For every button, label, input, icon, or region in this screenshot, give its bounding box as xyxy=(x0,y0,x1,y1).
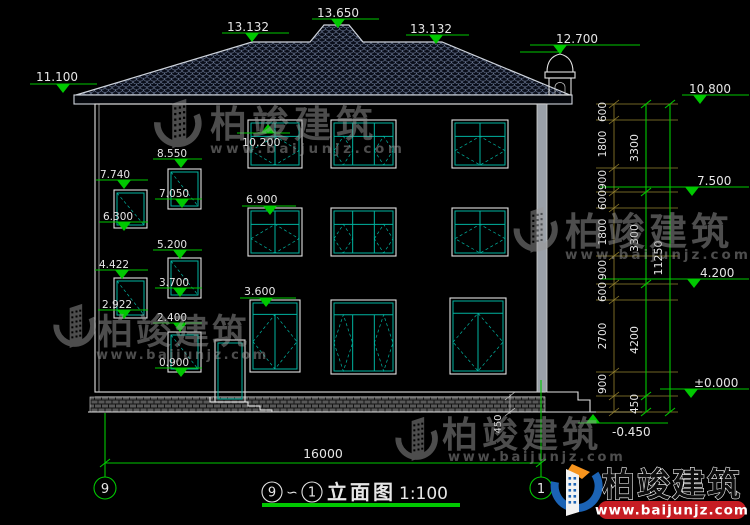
elevation-marker: 4.200 xyxy=(600,266,749,288)
axis-9: 9 xyxy=(94,413,116,499)
brand-logo-text: 柏竣建筑 xyxy=(602,465,742,504)
elevation-marker: 7.500 xyxy=(600,174,749,196)
elevation-marker: 6.900 xyxy=(242,193,296,215)
watermark-bottom: 柏竣建筑 www.baijunjz.com xyxy=(398,415,625,465)
dimension-label: 600 xyxy=(597,282,609,302)
watermark-url: www.baijunjz.com xyxy=(96,348,269,363)
elevation-marker: 7.050 xyxy=(155,188,202,208)
watermark-logo-icon xyxy=(157,99,198,148)
elevation-marker: 8.550 xyxy=(153,148,202,168)
dimension-label: 1800 xyxy=(597,131,609,158)
cad-elevation-screenshot: 11.10013.13213.65013.13212.70010.8007.50… xyxy=(0,0,750,525)
elevation-value: ±0.000 xyxy=(694,376,738,390)
dimension-label: 900 xyxy=(597,374,609,394)
elevation-value: 12.700 xyxy=(556,32,598,46)
dimension-label: 2700 xyxy=(597,323,609,350)
elevation-value: 3.700 xyxy=(159,277,189,289)
elevation-value: 10.800 xyxy=(689,82,731,96)
elevation-marker: 7.740 xyxy=(96,169,148,189)
elevation-drawing: 11.10013.13213.65013.13212.70010.8007.50… xyxy=(0,0,750,525)
elevation-value: 13.132 xyxy=(227,20,269,34)
right-step xyxy=(547,392,590,412)
title-scale: 1:100 xyxy=(399,484,448,504)
watermark-logo-icon xyxy=(56,304,93,348)
dimension-label: 600 xyxy=(597,190,609,210)
elevation-marker: 13.132 xyxy=(406,22,469,44)
title-underline xyxy=(262,503,460,507)
window xyxy=(452,208,508,256)
elevation-value: 7.740 xyxy=(100,169,130,181)
window xyxy=(450,298,506,374)
plinth-brick xyxy=(90,397,545,412)
title-tilde: ∽ xyxy=(286,485,298,501)
watermark-logo-icon xyxy=(398,417,435,461)
elevation-value: 6.900 xyxy=(246,193,278,206)
elevation-value: 5.200 xyxy=(157,239,187,251)
logo-building-icon xyxy=(566,469,579,516)
elevation-marker: 3.600 xyxy=(240,285,296,307)
brand-logo-url: www.baijunjz.com xyxy=(595,503,749,519)
elevation-marker: 4.422 xyxy=(95,259,148,279)
watermark-right: 柏竣建筑 www.baijunjz.com xyxy=(517,207,750,263)
elevation-value: -0.450 xyxy=(612,425,651,439)
dimension-label: 3300 xyxy=(628,134,641,162)
window xyxy=(248,208,302,256)
roof-outline xyxy=(76,25,570,95)
dimension-label: 600 xyxy=(597,102,609,122)
elevation-value: 2.922 xyxy=(102,299,132,311)
overall-width-label: 16000 xyxy=(303,446,343,461)
roof xyxy=(74,25,575,104)
watermark-url: www.baijunjz.com xyxy=(565,247,750,263)
elevation-value: 7.050 xyxy=(159,188,189,200)
watermark-left: 柏竣建筑 www.baijunjz.com xyxy=(56,304,268,363)
axis-1-label: 1 xyxy=(537,482,545,497)
watermark-url: www.baijunjz.com xyxy=(210,141,406,157)
watermark-logo-icon xyxy=(517,207,555,253)
dimension-label: 4200 xyxy=(628,326,641,354)
window xyxy=(331,300,396,374)
elevation-marker: 11.100 xyxy=(30,70,97,93)
elevation-marker: 10.800 xyxy=(682,82,749,104)
window xyxy=(331,208,396,256)
elevation-marker: 3.700 xyxy=(155,277,202,297)
title-axis-to: 1 xyxy=(308,486,316,501)
roof-turret xyxy=(545,48,575,95)
watermark-brand: 柏竣建筑 xyxy=(98,312,250,353)
elevation-value: 7.500 xyxy=(697,174,731,188)
elevation-marker: ±0.000 xyxy=(660,376,749,398)
elevation-value: 3.600 xyxy=(244,285,276,298)
elevation-value: 4.422 xyxy=(99,259,129,271)
dimension-chains-layer: 6001800900600180090060027009003300330042… xyxy=(493,100,678,434)
elevation-marker: 13.132 xyxy=(222,20,289,42)
elevation-marker: 5.200 xyxy=(153,239,202,259)
elevation-value: 13.132 xyxy=(410,22,452,36)
watermark-brand: 柏竣建筑 xyxy=(210,103,378,146)
elevation-value: 11.100 xyxy=(36,70,78,84)
elevation-value: 13.650 xyxy=(317,6,359,20)
drawing-title: 9 ∽ 1 立面图 1:100 xyxy=(262,480,460,507)
title-text: 立面图 xyxy=(327,480,396,504)
brand-logo: 柏竣建筑 www.baijunjz.com xyxy=(555,464,749,519)
title-axis-from: 9 xyxy=(268,486,276,501)
elevation-value: 8.550 xyxy=(157,148,187,160)
watermark-top: 柏竣建筑 www.baijunjz.com xyxy=(157,99,405,157)
elevation-marker: 12.700 xyxy=(530,32,640,54)
dimension-label: 450 xyxy=(629,394,641,414)
dimension-label: 900 xyxy=(597,170,609,190)
axis-9-label: 9 xyxy=(101,482,109,497)
window xyxy=(452,120,508,168)
watermark-url: www.baijunjz.com xyxy=(448,450,626,465)
elevation-value: 6.300 xyxy=(103,211,133,223)
elevation-value: 4.200 xyxy=(700,266,734,280)
